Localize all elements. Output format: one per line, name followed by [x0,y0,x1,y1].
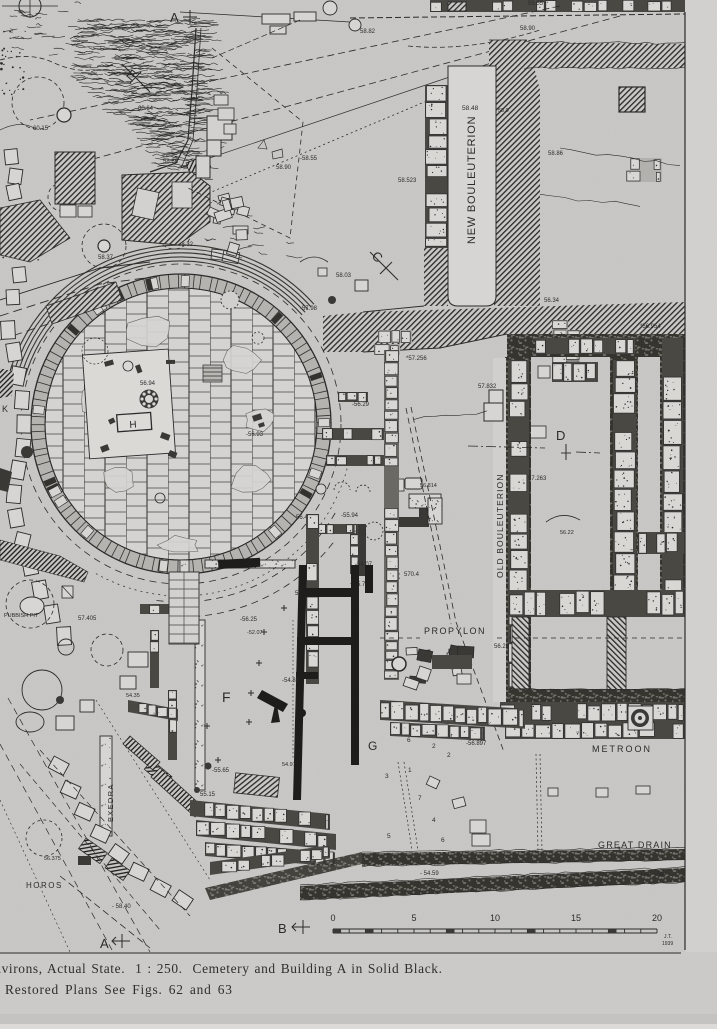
svg-text:-56.25: -56.25 [240,617,258,623]
svg-text:NEW BOULEUTERION: NEW BOULEUTERION [466,116,478,244]
svg-text:PROPYLON: PROPYLON [424,626,486,636]
svg-text:-56.93: -56.93 [246,432,264,438]
svg-text:*56.954: *56.954 [640,324,661,330]
svg-text:HOROS: HOROS [26,881,63,890]
svg-text:10: 10 [490,913,500,923]
svg-text:avirons, Actual State. 1 : 25: avirons, Actual State. 1 : 250. Cemetery… [0,961,443,976]
svg-text:57.405: 57.405 [78,616,97,622]
svg-text:5: 5 [387,833,391,840]
svg-text:54.97: 54.97 [282,762,296,768]
svg-text:H: H [129,419,137,430]
svg-text:60.64: 60.64 [138,106,154,112]
svg-text:59.55: 59.55 [528,1,544,7]
svg-text:-58.55: -58.55 [300,156,318,162]
svg-text:B: B [278,921,287,936]
svg-text:3: 3 [385,773,389,780]
svg-text:F: F [222,689,231,705]
svg-text:58.82: 58.82 [360,29,376,35]
svg-text:0: 0 [330,913,335,923]
svg-text:2: 2 [432,743,436,750]
svg-text:4: 4 [432,817,436,824]
svg-text:K: K [2,404,8,414]
svg-text:570.4: 570.4 [404,572,420,578]
svg-text:58.37: 58.37 [98,255,114,261]
svg-text:GREAT DRAIN: GREAT DRAIN [598,840,672,850]
svg-text:PUBBISH PIT: PUBBISH PIT [4,613,39,619]
svg-text:58.90: 58.90 [520,26,536,32]
svg-text:6: 6 [407,737,411,744]
svg-text:56.94: 56.94 [140,381,156,387]
svg-text:58.523: 58.523 [398,178,417,184]
svg-text:58.0: 58.0 [498,108,509,114]
svg-text:15: 15 [571,913,581,923]
svg-text:55.15: 55.15 [200,792,216,798]
svg-text:7: 7 [418,795,422,802]
svg-text:*57.256: *57.256 [406,356,427,362]
svg-text:58.90: 58.90 [276,165,292,171]
svg-text:EXEDRA: EXEDRA [106,783,115,822]
svg-text:57.263: 57.263 [528,476,547,482]
svg-text:J.T.: J.T. [664,934,672,940]
svg-text:54.35: 54.35 [126,693,140,699]
svg-text:6: 6 [441,837,445,844]
svg-text:-55.65: -55.65 [212,768,230,774]
svg-text:57.832: 57.832 [478,384,497,390]
svg-text:58.48: 58.48 [462,105,479,112]
svg-text:20: 20 [652,913,662,923]
svg-text:METROON: METROON [592,744,652,754]
svg-text:OLD BOULEUTERION: OLD BOULEUTERION [495,473,505,578]
svg-text:-52.07: -52.07 [247,630,263,636]
svg-text:-57.98: -57.98 [300,306,318,312]
svg-text:- 54.59: - 54.59 [420,871,439,877]
svg-text:-56.897: -56.897 [466,741,487,747]
svg-text:56.22: 56.22 [560,530,574,536]
svg-text:56.34: 56.34 [544,298,560,304]
svg-text:A: A [100,936,109,951]
svg-text:D: D [556,428,565,443]
svg-text:Restored Plans See Figs. 62 an: Restored Plans See Figs. 62 and 63 [5,982,233,997]
svg-text:58.03: 58.03 [336,273,352,279]
svg-text:5: 5 [411,913,416,923]
svg-text:- 58.40: - 58.40 [112,904,131,910]
svg-text:-56.29: -56.29 [352,402,370,408]
svg-text:56.375: 56.375 [44,856,61,862]
svg-text:56.22: 56.22 [494,644,510,650]
svg-text:1: 1 [408,767,412,774]
svg-text:-54.87: -54.87 [282,678,300,684]
svg-text:-55.94: -55.94 [341,513,359,519]
svg-text:2: 2 [447,752,451,759]
svg-text:1939: 1939 [662,941,673,947]
svg-text:G: G [368,739,377,753]
svg-text:58.86: 58.86 [548,151,564,157]
